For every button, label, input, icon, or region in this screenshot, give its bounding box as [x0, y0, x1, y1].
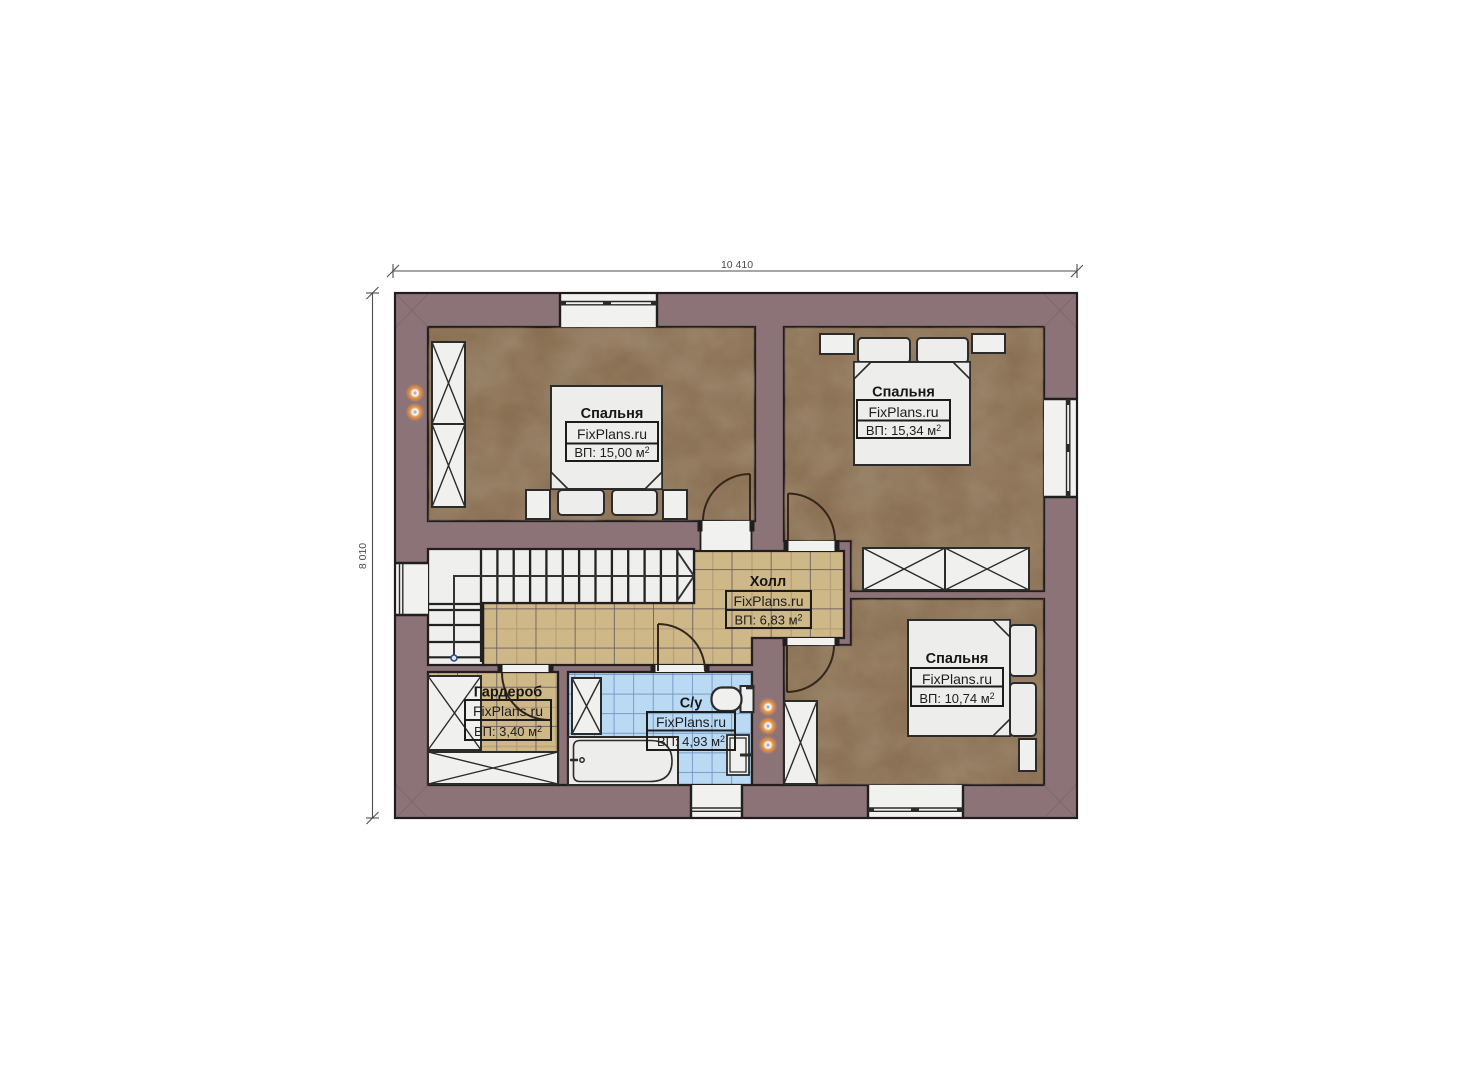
svg-text:ВП: 15,00 м2: ВП: 15,00 м2: [574, 445, 649, 460]
svg-text:С/у: С/у: [680, 696, 703, 712]
svg-text:10 410: 10 410: [721, 259, 753, 271]
svg-text:Холл: Холл: [750, 574, 786, 590]
svg-text:Гардероб: Гардероб: [474, 685, 543, 701]
svg-text:ВП: 10,74 м2: ВП: 10,74 м2: [919, 691, 994, 706]
svg-text:FixPlans.ru: FixPlans.ru: [577, 426, 647, 442]
svg-text:8 010: 8 010: [357, 543, 369, 569]
svg-text:ВП: 15,34 м2: ВП: 15,34 м2: [866, 423, 941, 438]
svg-text:FixPlans.ru: FixPlans.ru: [656, 714, 726, 730]
svg-text:ВП: 4,93 м2: ВП: 4,93 м2: [657, 734, 725, 749]
svg-text:FixPlans.ru: FixPlans.ru: [733, 593, 803, 609]
svg-text:Спальня: Спальня: [872, 385, 935, 401]
svg-text:FixPlans.ru: FixPlans.ru: [868, 404, 938, 420]
svg-text:ВП: 6,83 м2: ВП: 6,83 м2: [734, 613, 802, 628]
svg-text:ВП: 3,40 м2: ВП: 3,40 м2: [474, 724, 542, 739]
svg-text:Спальня: Спальня: [926, 651, 989, 667]
svg-text:Спальня: Спальня: [581, 406, 644, 422]
svg-text:FixPlans.ru: FixPlans.ru: [473, 703, 543, 719]
svg-text:FixPlans.ru: FixPlans.ru: [922, 671, 992, 687]
